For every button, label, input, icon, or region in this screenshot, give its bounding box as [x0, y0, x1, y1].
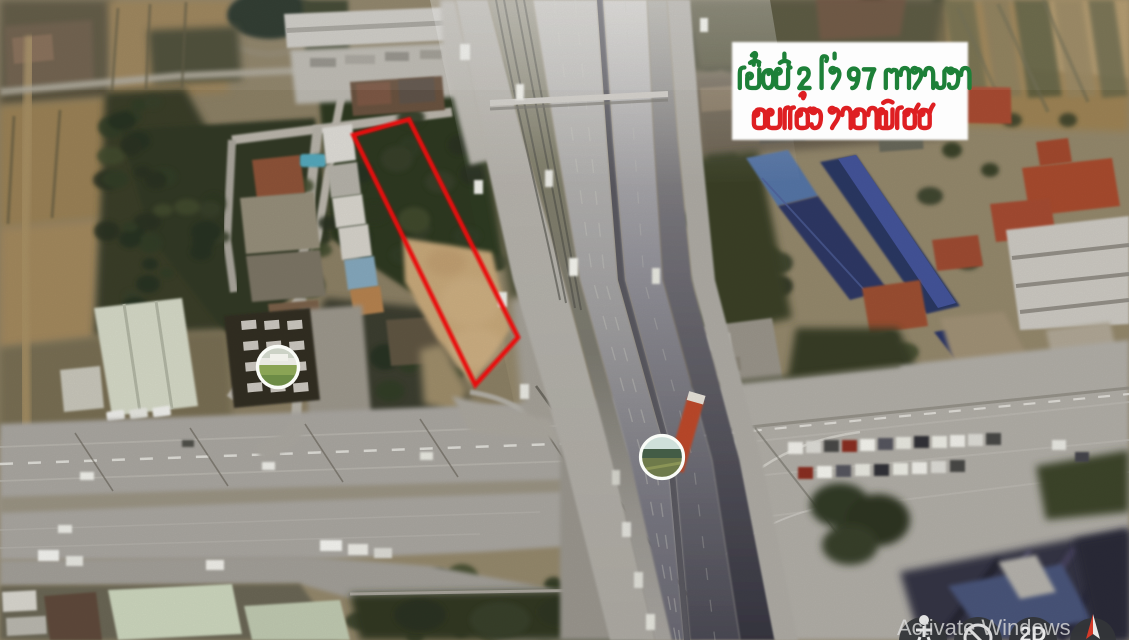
svg-text:Activate Windows: Activate Windows: [897, 615, 1071, 640]
